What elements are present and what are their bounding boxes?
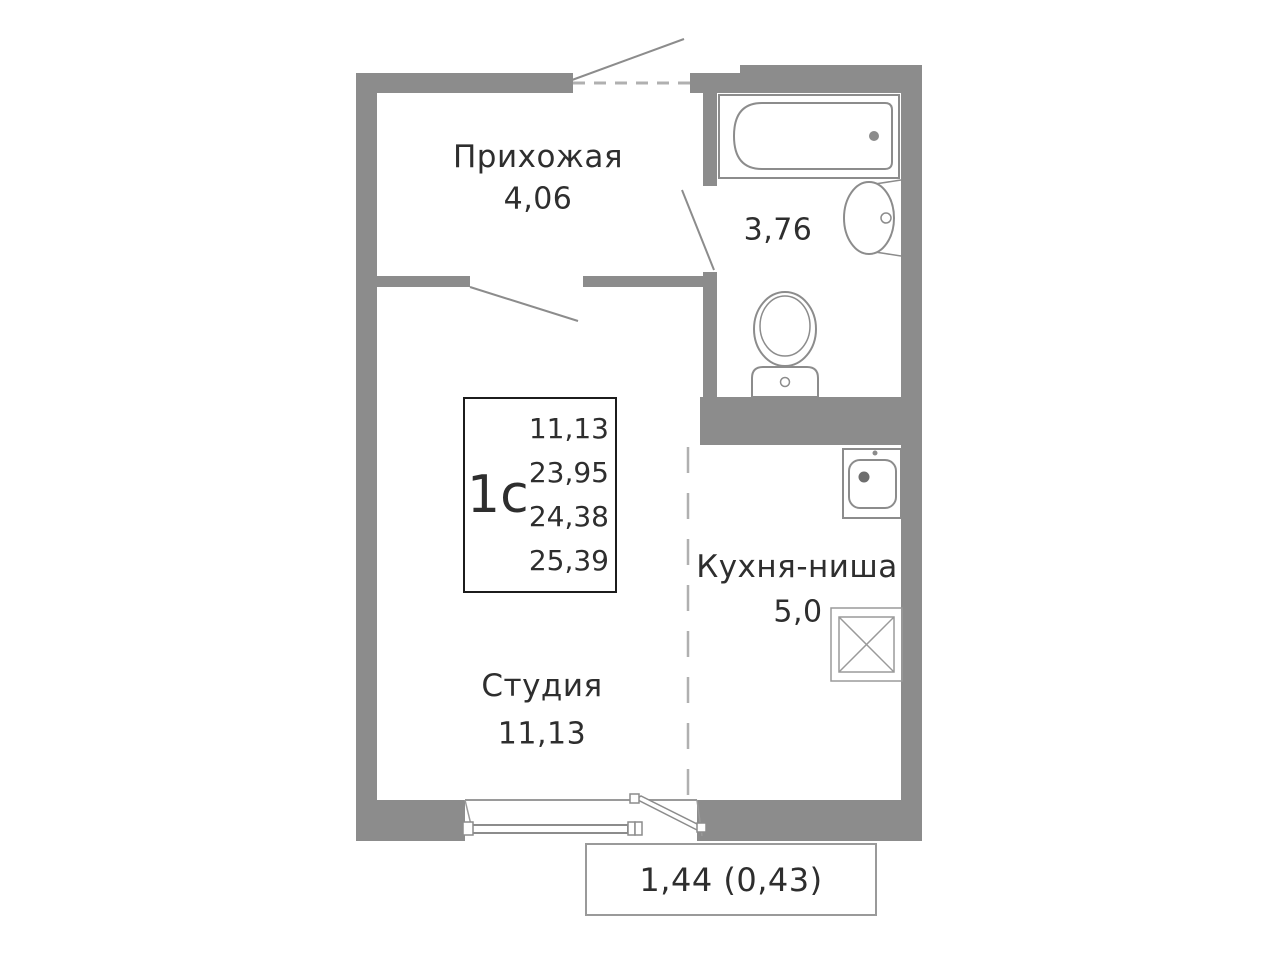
studio-label: Студия	[481, 668, 602, 704]
balcony-outline: 1,44 (0,43)	[585, 843, 877, 916]
wall-right	[901, 65, 922, 841]
wall-left	[356, 73, 377, 841]
studio-area: 11,13	[498, 717, 586, 752]
wall-top-right	[740, 65, 922, 93]
washbasin-icon	[844, 180, 901, 256]
balcony-area: 1,44 (0,43)	[639, 861, 822, 899]
hallway-area: 4,06	[504, 182, 573, 217]
unit-area-row: 25,39	[529, 539, 609, 583]
unit-stats-box: 1с 11,13 23,95 24,38 25,39	[463, 397, 617, 593]
unit-area-row: 23,95	[529, 451, 609, 495]
wall-top-left	[356, 73, 573, 93]
bathtub-icon	[719, 95, 899, 178]
wall-bathroom-upper	[703, 90, 717, 186]
toilet-icon	[752, 292, 818, 397]
plan-lines-svg	[0, 0, 1280, 960]
interior-door-icon	[470, 287, 578, 321]
kitchen-label: Кухня-ниша	[696, 549, 898, 585]
bathroom-area: 3,76	[744, 213, 813, 248]
hallway-label: Прихожая	[453, 139, 623, 175]
wall-hallway-stub-left	[377, 276, 470, 287]
wall-hallway-stub-right	[583, 276, 717, 287]
floor-plan: Прихожая 4,06 3,76 Кухня-ниша 5,0 Студия…	[0, 0, 1280, 960]
kitchen-sink-icon	[843, 449, 901, 518]
balcony-door-icon	[630, 794, 706, 832]
entrance-door-icon	[572, 39, 690, 83]
stove-hob-icon	[831, 608, 902, 681]
wall-bathroom-bottom-block	[700, 397, 922, 445]
wall-bottom-left	[356, 800, 465, 841]
wall-bottom-right	[697, 800, 922, 841]
unit-areas-list: 11,13 23,95 24,38 25,39	[529, 407, 615, 583]
window-icon	[463, 800, 702, 836]
kitchen-area: 5,0	[773, 595, 822, 630]
wall-bathroom-lower	[703, 272, 717, 397]
bathroom-door-icon	[682, 190, 714, 270]
unit-area-row: 11,13	[529, 407, 609, 451]
unit-area-row: 24,38	[529, 495, 609, 539]
unit-type-label: 1с	[467, 469, 529, 521]
